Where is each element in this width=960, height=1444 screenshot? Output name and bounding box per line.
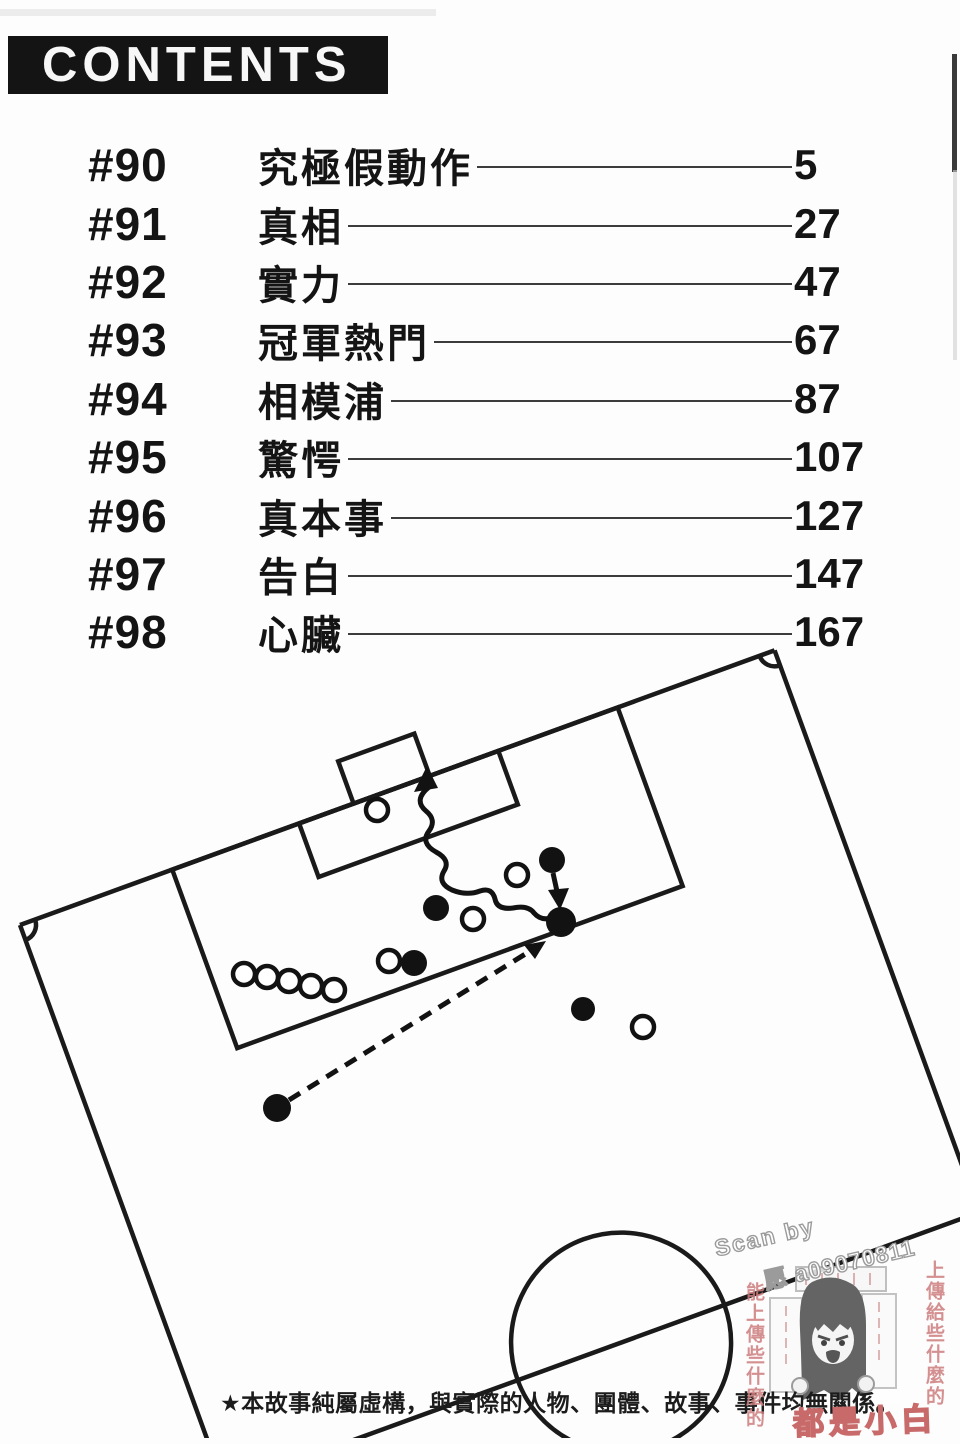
chapter-title: 真本事 bbox=[258, 487, 387, 545]
chapter-number: #98 bbox=[88, 605, 258, 659]
filled-player-dot bbox=[546, 907, 576, 937]
goal-area bbox=[299, 751, 518, 877]
marker-arrowhead bbox=[548, 888, 569, 910]
chapter-title: 心臟 bbox=[258, 603, 344, 661]
leader-line bbox=[348, 633, 792, 635]
filled-player-dot bbox=[423, 895, 449, 921]
hollow-player-dot bbox=[300, 975, 322, 997]
chapter-title: 究極假動作 bbox=[258, 136, 473, 194]
chapter-title: 冠軍熱門 bbox=[258, 311, 430, 369]
chapter-number: #92 bbox=[88, 255, 258, 309]
toc-row: #90 究極假動作 5 bbox=[88, 136, 858, 194]
toc-row: #94 相模浦 87 bbox=[88, 370, 858, 428]
pass-dashed-line bbox=[289, 953, 527, 1100]
hollow-player-dot bbox=[366, 799, 388, 821]
table-of-contents: #90 究極假動作 5 #91 真相 27 #92 實力 47 #93 冠軍熱門… bbox=[88, 136, 858, 662]
chapter-page: 67 bbox=[794, 316, 858, 364]
right-sideline bbox=[775, 650, 960, 1251]
chapter-page: 5 bbox=[794, 141, 858, 189]
chapter-page: 147 bbox=[794, 550, 858, 598]
chapter-page: 47 bbox=[794, 258, 858, 306]
chapter-page: 27 bbox=[794, 200, 858, 248]
chapter-title: 真相 bbox=[258, 195, 344, 253]
chapter-number: #93 bbox=[88, 313, 258, 367]
toc-row: #92 實力 47 bbox=[88, 253, 858, 311]
penalty-area bbox=[172, 707, 682, 1048]
page-title: CONTENTS bbox=[8, 41, 352, 90]
leader-line bbox=[348, 575, 792, 577]
chapter-number: #95 bbox=[88, 430, 258, 484]
toc-row: #96 真本事 127 bbox=[88, 486, 858, 544]
movement-arrows bbox=[289, 766, 569, 1100]
toc-row: #98 心臟 167 bbox=[88, 603, 858, 661]
player-dots bbox=[233, 799, 654, 1122]
filled-player-dot bbox=[539, 847, 565, 873]
watermark-left-vertical-text: 能上傳些什麼的 bbox=[740, 1282, 767, 1432]
chapter-page: 167 bbox=[794, 608, 858, 656]
hollow-player-dot bbox=[632, 1016, 654, 1038]
chapter-title: 告白 bbox=[258, 545, 344, 603]
chapter-title: 相模浦 bbox=[258, 370, 387, 428]
filled-player-dot bbox=[401, 950, 427, 976]
goal-box bbox=[338, 734, 430, 804]
toc-row: #97 告白 147 bbox=[88, 545, 858, 603]
filled-player-dot bbox=[263, 1094, 291, 1122]
left-sideline bbox=[20, 925, 218, 1438]
leader-line bbox=[434, 341, 792, 343]
contents-header: CONTENTS bbox=[8, 36, 388, 94]
leader-line bbox=[391, 400, 792, 402]
hollow-player-dot bbox=[462, 908, 484, 930]
leader-line bbox=[391, 517, 792, 519]
hollow-player-dot bbox=[378, 950, 400, 972]
toc-row: #93 冠軍熱門 67 bbox=[88, 311, 858, 369]
chapter-title: 驚愕 bbox=[258, 428, 344, 486]
leader-line bbox=[348, 283, 792, 285]
hollow-player-dot bbox=[506, 864, 528, 886]
chapter-number: #97 bbox=[88, 547, 258, 601]
chapter-number: #96 bbox=[88, 489, 258, 543]
hollow-player-dot bbox=[278, 970, 300, 992]
chapter-page: 127 bbox=[794, 492, 858, 540]
chapter-number: #91 bbox=[88, 197, 258, 251]
chapter-number: #94 bbox=[88, 372, 258, 426]
chapter-number: #90 bbox=[88, 138, 258, 192]
toc-row: #95 驚愕 107 bbox=[88, 428, 858, 486]
filled-player-dot bbox=[571, 997, 595, 1021]
chapter-page: 87 bbox=[794, 375, 858, 423]
chapter-title: 實力 bbox=[258, 253, 344, 311]
chapter-page: 107 bbox=[794, 433, 858, 481]
leader-line bbox=[348, 225, 792, 227]
leader-line bbox=[348, 458, 792, 460]
watermark-bottom-text: 都是小白 bbox=[792, 1394, 937, 1444]
toc-row: #91 真相 27 bbox=[88, 194, 858, 252]
hollow-player-dot bbox=[323, 979, 345, 1001]
leader-line bbox=[477, 166, 792, 168]
hollow-player-dot bbox=[233, 963, 255, 985]
hollow-player-dot bbox=[256, 966, 278, 988]
